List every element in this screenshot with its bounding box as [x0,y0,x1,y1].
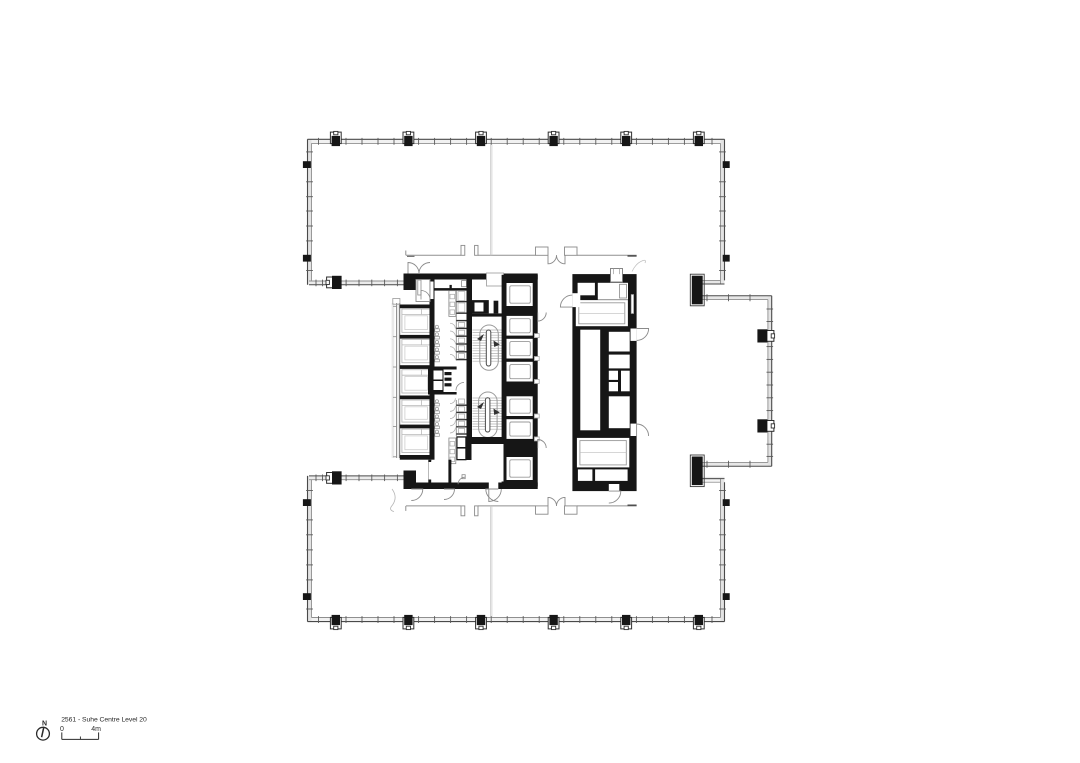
svg-text:0: 0 [60,726,64,733]
svg-text:4m: 4m [91,726,101,733]
svg-text:N: N [42,721,47,728]
svg-text:2561 - Suhe Centre Level 20: 2561 - Suhe Centre Level 20 [61,717,147,724]
